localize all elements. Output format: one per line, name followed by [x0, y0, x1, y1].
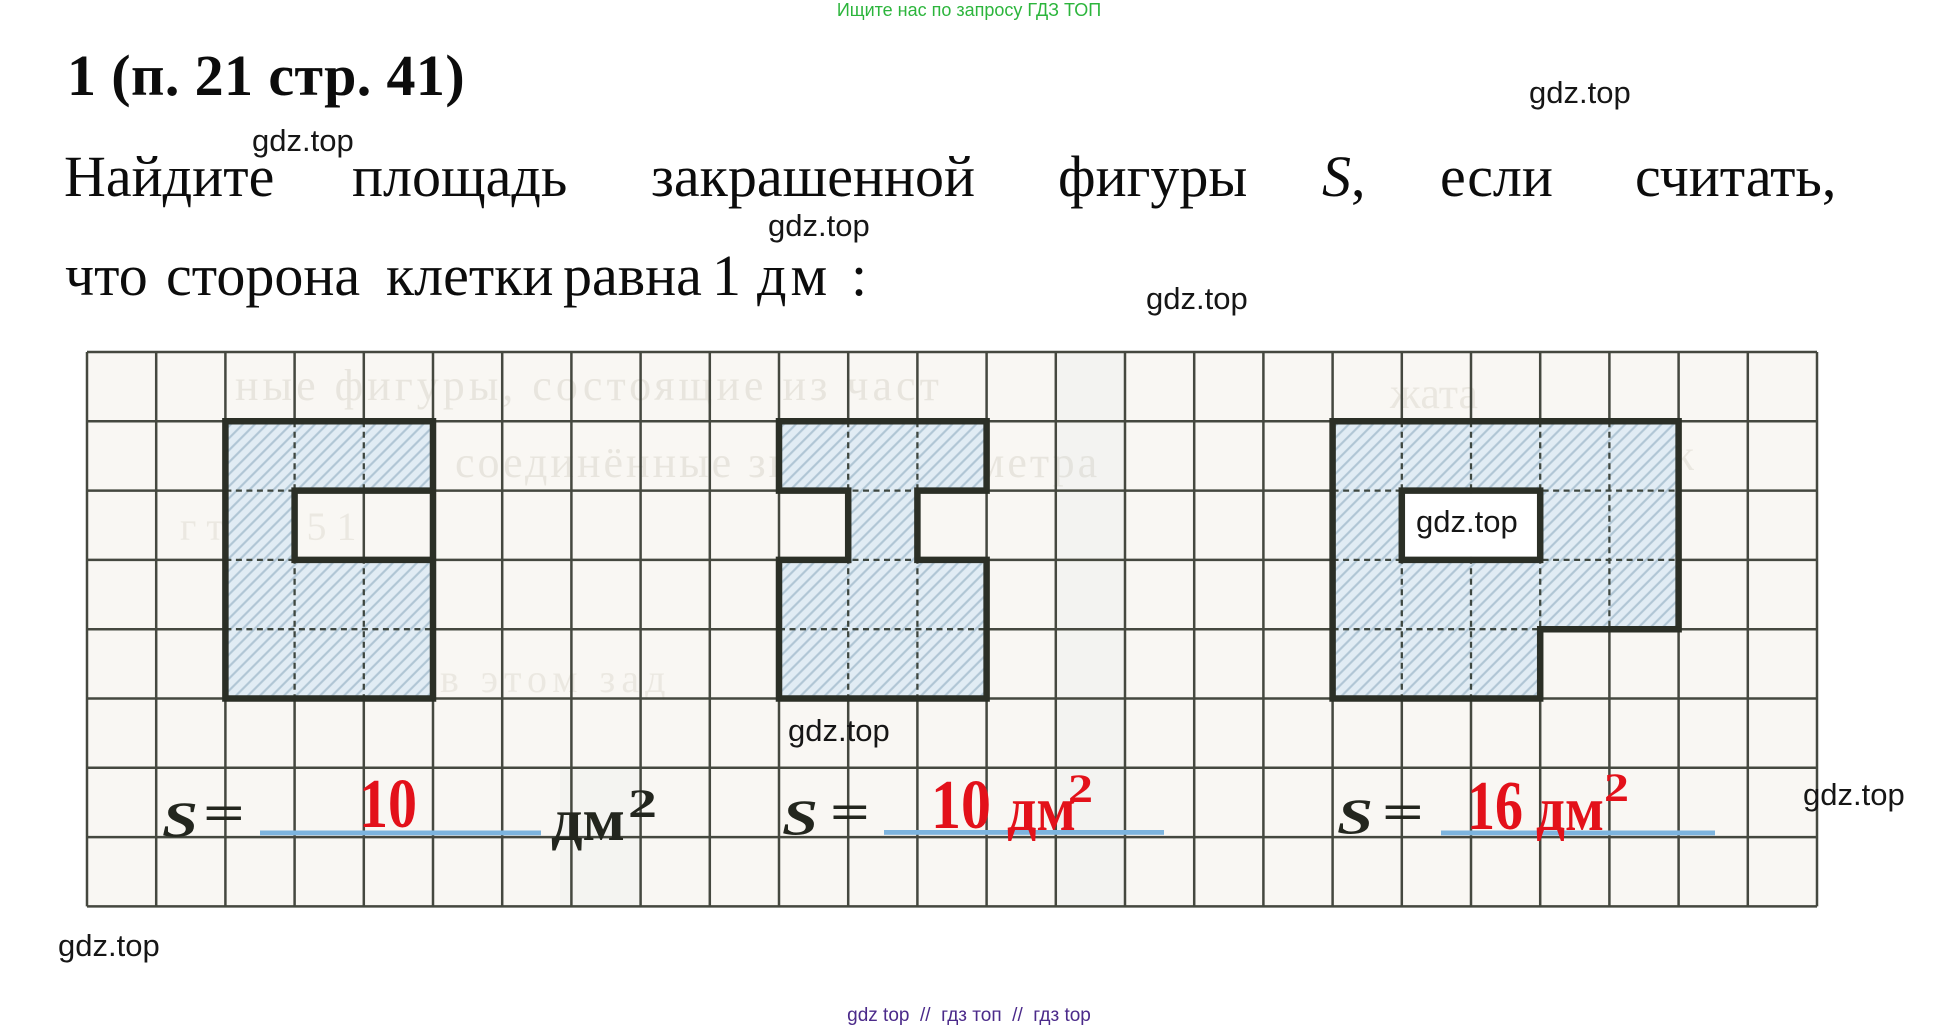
svg-text:S: S — [1337, 788, 1373, 844]
svg-text:=: = — [830, 784, 870, 840]
svg-text:дм: дм — [1007, 776, 1076, 844]
svg-text:ные фигуры, состоящие из част: ные фигуры, состоящие из част — [235, 361, 943, 410]
svg-text:10: 10 — [359, 766, 417, 843]
svg-text:дм: дм — [1536, 776, 1604, 844]
svg-text:в этом зад: в этом зад — [440, 656, 671, 701]
svg-text:=: = — [1382, 784, 1424, 840]
svg-text:2: 2 — [1604, 765, 1629, 810]
svg-text:2: 2 — [1068, 766, 1093, 811]
svg-text:2: 2 — [628, 781, 657, 826]
svg-text:=: = — [203, 785, 245, 841]
svg-text:S: S — [162, 791, 198, 847]
svg-text:S: S — [782, 789, 818, 845]
svg-text:10: 10 — [931, 767, 991, 844]
svg-text:16: 16 — [1467, 768, 1523, 845]
svg-text:дм: дм — [551, 787, 625, 853]
